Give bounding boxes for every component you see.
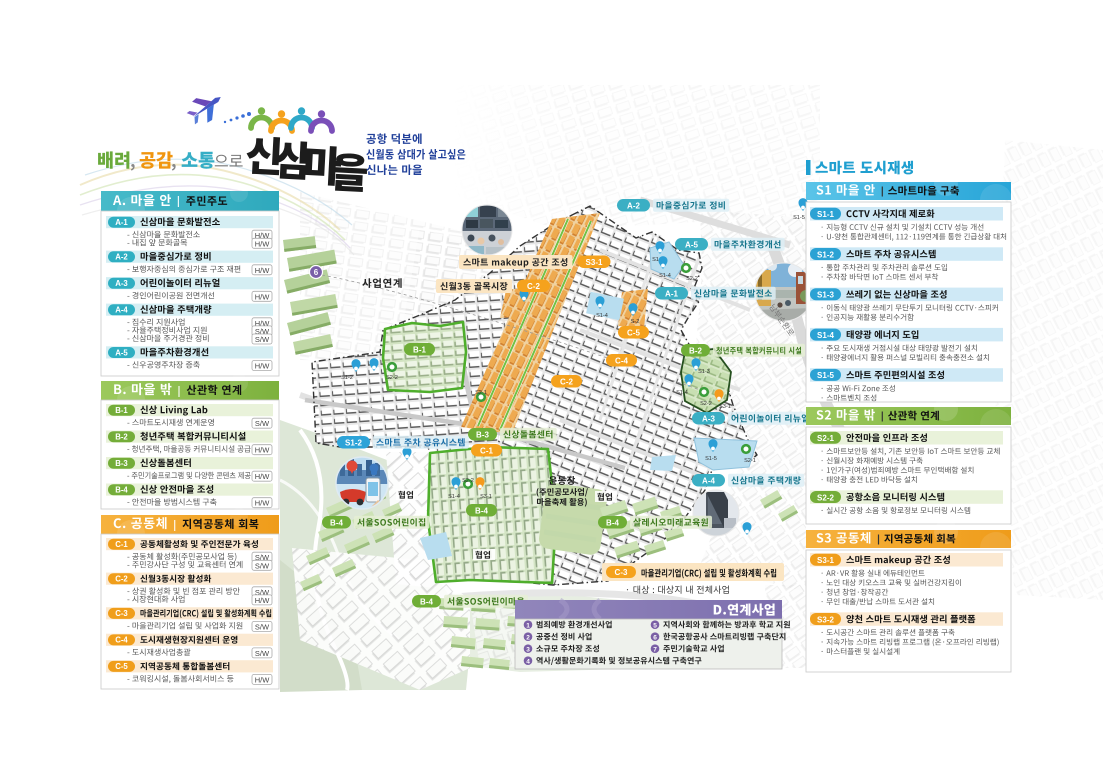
svg-text:H/W: H/W	[255, 239, 271, 248]
svg-text:H/W: H/W	[255, 446, 271, 455]
svg-text:S1-4: S1-4	[659, 273, 671, 279]
svg-text:C-5: C-5	[115, 662, 128, 671]
svg-text:C-1: C-1	[480, 446, 493, 455]
svg-text:S1-3: S1-3	[698, 369, 710, 375]
svg-text:B-4: B-4	[420, 597, 433, 606]
svg-text:S2-1: S2-1	[744, 458, 756, 464]
svg-text:B-4: B-4	[115, 486, 128, 495]
svg-text:A-2: A-2	[115, 253, 128, 262]
svg-text:C-4: C-4	[115, 636, 128, 645]
svg-text:B-4: B-4	[475, 506, 488, 515]
svg-text:B-2: B-2	[115, 433, 128, 442]
svg-text:S1-3: S1-3	[817, 291, 834, 300]
svg-text:B-4: B-4	[606, 518, 619, 527]
svg-text:S1-5: S1-5	[793, 215, 805, 221]
svg-text:S2-2: S2-2	[700, 401, 712, 407]
svg-text:C-2: C-2	[560, 377, 573, 386]
svg-text:S1-4: S1-4	[596, 313, 608, 319]
svg-text:A-4: A-4	[115, 306, 128, 315]
svg-text:S2-1: S2-1	[475, 390, 487, 396]
svg-text:S1-4: S1-4	[676, 390, 688, 396]
svg-text:S2-2: S2-2	[817, 493, 834, 502]
svg-text:S1-4: S1-4	[817, 331, 834, 340]
svg-text:S1-2: S1-2	[345, 438, 362, 447]
svg-text:C-2: C-2	[115, 575, 128, 584]
svg-text:S2-1: S2-1	[817, 434, 834, 443]
svg-text:B-1: B-1	[413, 345, 426, 354]
svg-text:2: 2	[526, 635, 530, 642]
svg-text:4: 4	[526, 659, 530, 666]
svg-text:C-4: C-4	[615, 356, 628, 365]
svg-text:A-4: A-4	[702, 476, 715, 485]
svg-text:C-5: C-5	[627, 328, 640, 337]
svg-text:H/W: H/W	[255, 499, 271, 508]
svg-text:C-3: C-3	[115, 609, 128, 618]
svg-text:7: 7	[653, 647, 657, 654]
svg-text:A-1: A-1	[115, 218, 128, 227]
svg-text:H/W: H/W	[255, 266, 271, 275]
svg-text:A-3: A-3	[702, 414, 715, 423]
svg-text:S/W: S/W	[255, 335, 270, 344]
svg-text:H/W: H/W	[255, 472, 271, 481]
svg-text:S/W: S/W	[255, 419, 270, 428]
svg-text:S3-1: S3-1	[817, 556, 834, 565]
svg-text:A-2: A-2	[627, 201, 640, 210]
svg-text:6: 6	[314, 268, 319, 277]
svg-text:S2-2: S2-2	[686, 276, 698, 282]
svg-text:S/W: S/W	[255, 561, 270, 570]
svg-text:B-3: B-3	[115, 459, 128, 468]
svg-text:B-1: B-1	[115, 406, 128, 415]
svg-text:B-4: B-4	[330, 518, 343, 527]
svg-text:S3-1: S3-1	[719, 404, 731, 410]
svg-text:S2-2: S2-2	[386, 375, 398, 381]
svg-text:S1-4: S1-4	[448, 494, 460, 500]
svg-text:B-2: B-2	[689, 346, 702, 355]
svg-text:A-3: A-3	[115, 279, 128, 288]
svg-text:5: 5	[653, 623, 657, 630]
svg-text:C-3: C-3	[615, 568, 628, 577]
svg-text:C-1: C-1	[115, 540, 128, 549]
svg-text:C-2: C-2	[527, 282, 540, 291]
svg-text:S/W: S/W	[255, 649, 270, 658]
svg-text:S3-1: S3-1	[480, 494, 492, 500]
svg-text:S3-2: S3-2	[817, 615, 834, 624]
svg-text:H/W: H/W	[255, 675, 271, 684]
svg-text:S2-2: S2-2	[462, 478, 474, 484]
svg-text:S3-1: S3-1	[586, 258, 603, 267]
svg-text:1: 1	[526, 623, 530, 630]
svg-text:H/W: H/W	[255, 292, 271, 301]
svg-text:A-5: A-5	[115, 348, 128, 357]
svg-text:S1-5: S1-5	[705, 456, 717, 462]
svg-text:S-2: S-2	[631, 319, 640, 325]
svg-text:B-3: B-3	[476, 430, 489, 439]
svg-text:S/W: S/W	[255, 622, 270, 631]
svg-text:S1-1: S1-1	[817, 210, 834, 219]
svg-text:A-5: A-5	[685, 240, 698, 249]
svg-text:6: 6	[653, 635, 657, 642]
svg-text:S1-5: S1-5	[817, 371, 834, 380]
svg-text:S1-2: S1-2	[341, 375, 353, 381]
svg-text:H/W: H/W	[255, 362, 271, 371]
svg-text:A-1: A-1	[665, 289, 678, 298]
svg-text:H/W: H/W	[255, 596, 271, 605]
svg-text:3: 3	[526, 647, 530, 654]
svg-text:S1-2: S1-2	[817, 250, 834, 259]
